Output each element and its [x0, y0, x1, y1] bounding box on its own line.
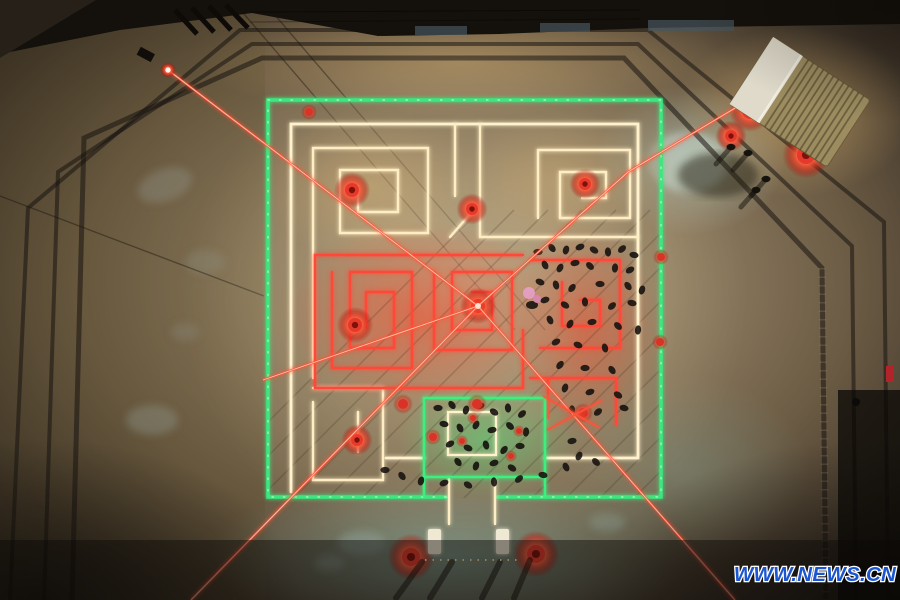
red-lantern-small: [398, 399, 408, 409]
red-lantern-small: [516, 428, 522, 434]
lantern-core: [349, 187, 355, 193]
red-lantern-small: [470, 415, 476, 421]
dark-object: [852, 398, 860, 406]
red-lantern-small: [656, 338, 664, 346]
red-lantern-small: [429, 433, 437, 441]
lantern-core: [728, 133, 733, 138]
laser-origin-flare: [165, 67, 170, 72]
visitor: [752, 187, 761, 193]
pole-marker: [886, 366, 894, 382]
news-photo-aerial-maze: WWW.NEWS.CN: [0, 0, 900, 600]
lantern-core: [354, 437, 359, 442]
visitor: [380, 467, 389, 473]
red-lantern-small: [657, 253, 665, 261]
visitor: [727, 144, 736, 150]
visitor: [744, 150, 753, 156]
news-watermark: WWW.NEWS.CN: [734, 563, 897, 586]
lantern-core: [469, 206, 474, 211]
lantern-core: [352, 322, 358, 328]
red-lantern-small: [305, 108, 313, 116]
photo-canvas: WWW.NEWS.CN: [0, 0, 900, 600]
red-lantern-small: [508, 453, 514, 459]
red-lantern-small: [472, 399, 482, 409]
laser-convergence-flare: [475, 303, 481, 309]
visitor: [433, 405, 442, 411]
lantern-core: [582, 181, 587, 186]
red-lantern-small: [459, 438, 465, 444]
visitor: [762, 176, 771, 182]
